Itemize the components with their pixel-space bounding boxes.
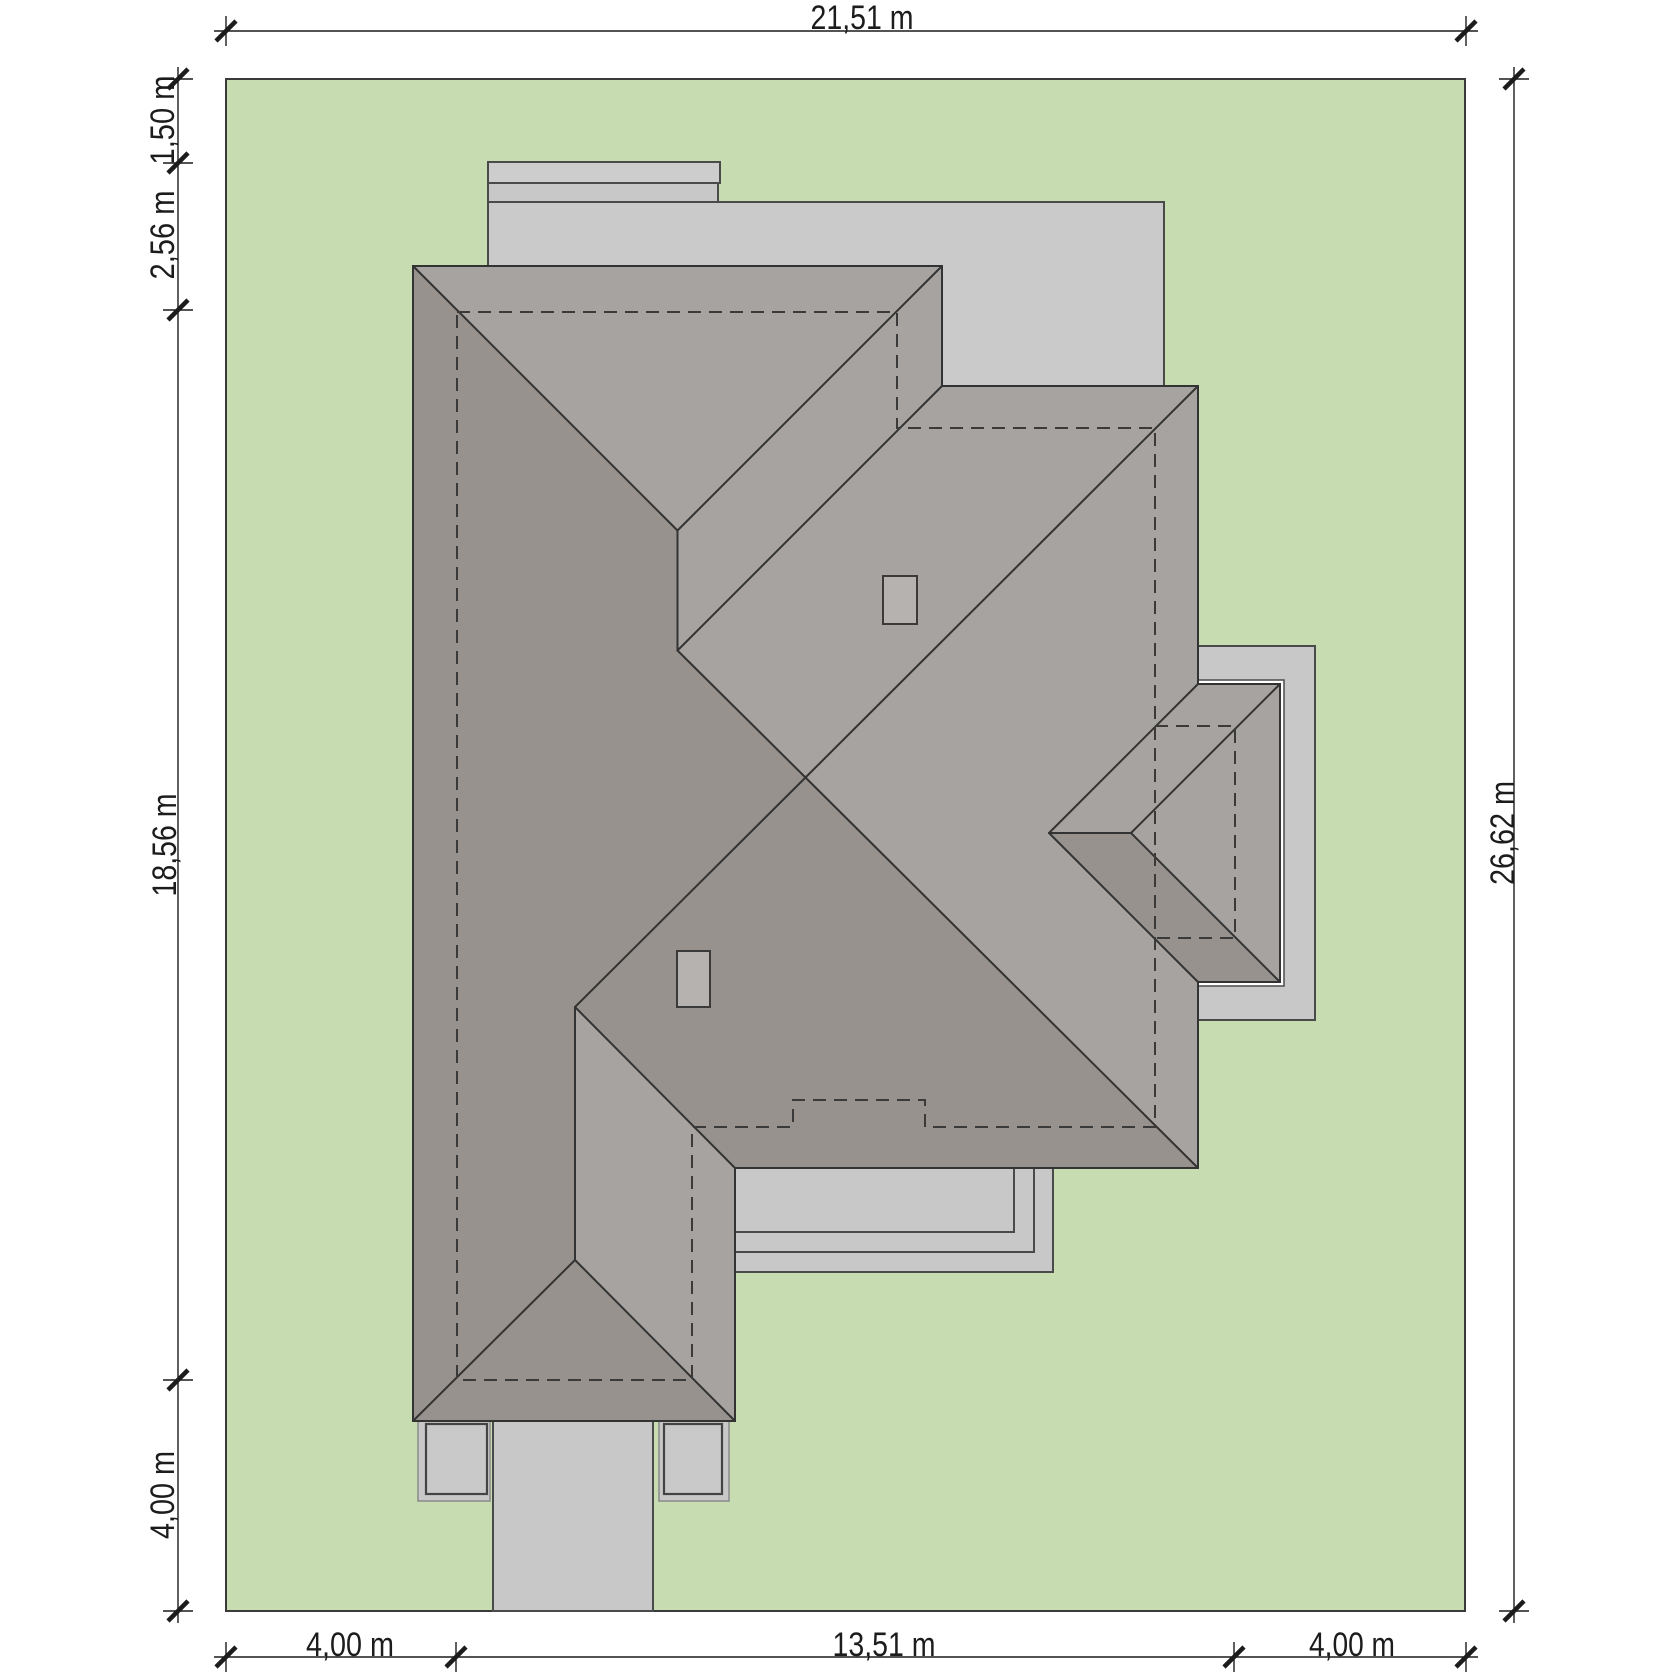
svg-text:4,00 m: 4,00 m bbox=[1309, 1626, 1395, 1664]
svg-text:18,56 m: 18,56 m bbox=[146, 794, 184, 897]
svg-text:4,00 m: 4,00 m bbox=[144, 1451, 182, 1539]
svg-text:13,51 m: 13,51 m bbox=[833, 1626, 936, 1664]
svg-text:1,50 m: 1,50 m bbox=[144, 76, 182, 165]
svg-text:26,62 m: 26,62 m bbox=[1484, 781, 1522, 885]
svg-text:21,51 m: 21,51 m bbox=[811, 0, 914, 37]
svg-text:4,00 m: 4,00 m bbox=[306, 1626, 394, 1664]
svg-text:2,56 m: 2,56 m bbox=[144, 191, 182, 280]
